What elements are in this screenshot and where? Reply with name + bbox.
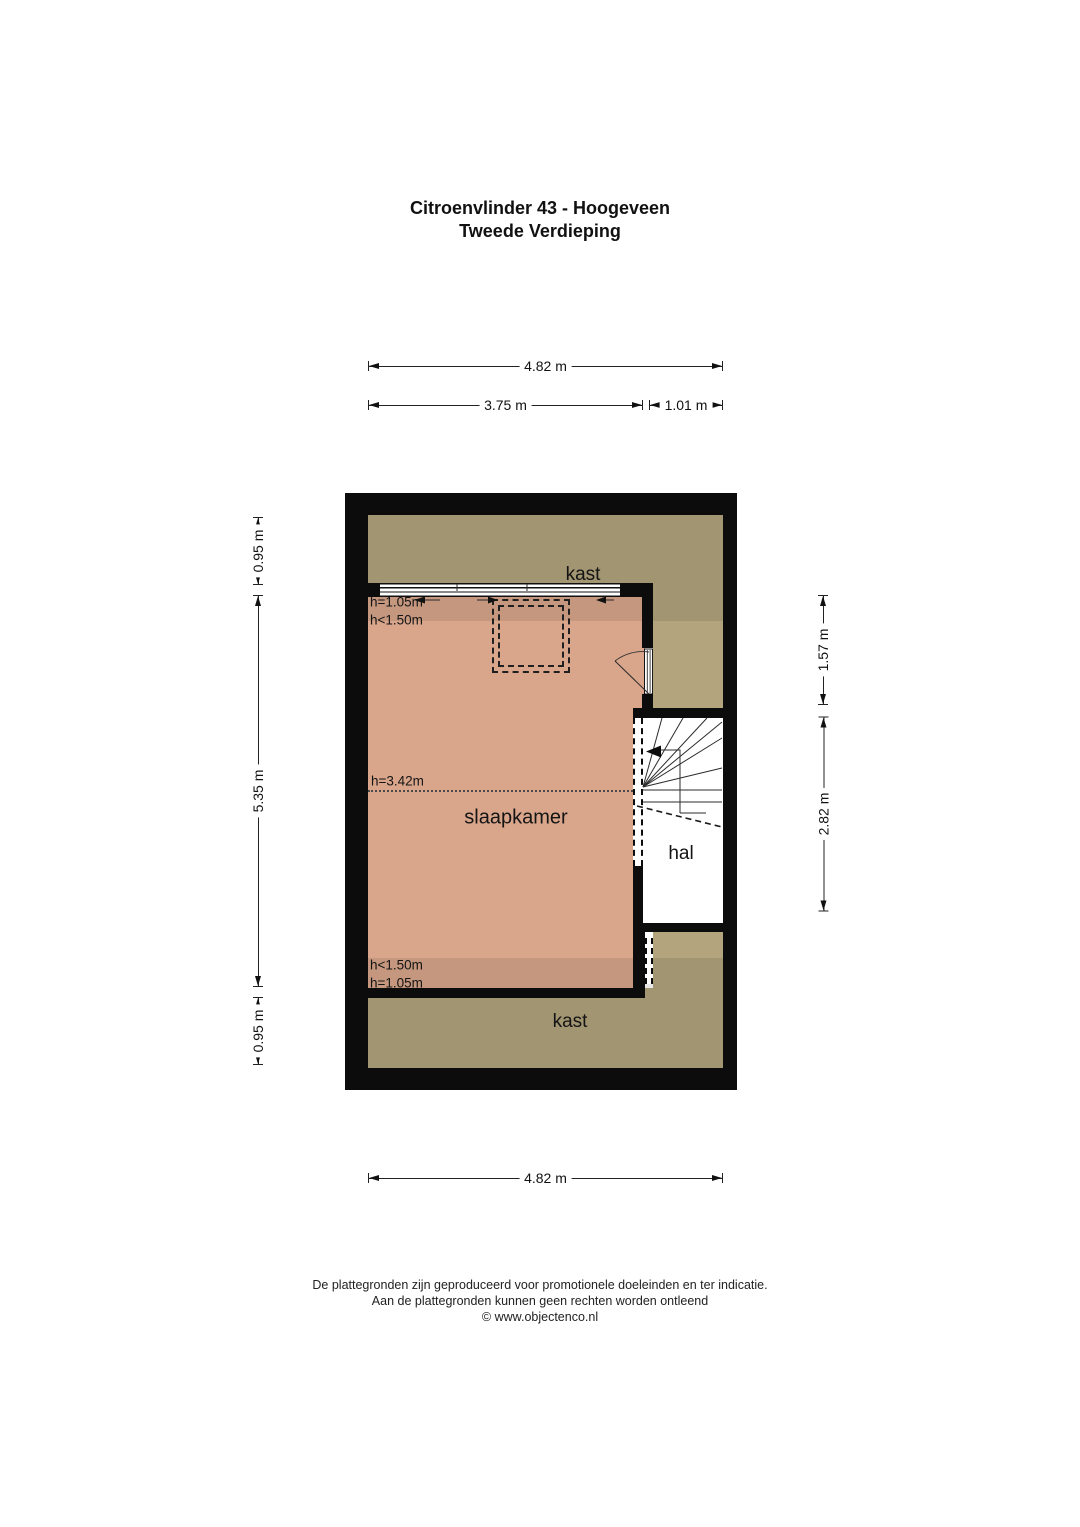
dim-arrow [369,1175,379,1181]
dim-label: 0.95 m [250,1005,266,1058]
title-floor: Tweede Verdieping [0,220,1080,243]
dim-tick [818,704,828,705]
dim-left-bottom: 0.95 m [251,997,265,1065]
dim-arrow [820,901,826,911]
disclaimer: De plattegronden zijn geproduceerd voor … [0,1277,1080,1325]
dim-arrow [369,402,379,408]
dim-arrow [650,402,660,408]
page-title: Citroenvlinder 43 - Hoogeveen Tweede Ver… [0,197,1080,243]
dim-label: 5.35 m [250,765,266,818]
plan-linework [345,493,737,1090]
leader-arrows [414,584,614,604]
staircase [637,718,722,827]
room-label-closet-top: kast [566,564,601,586]
floorplan-page: Citroenvlinder 43 - Hoogeveen Tweede Ver… [0,0,1080,1527]
dim-right-bottom: 2.82 m [817,717,831,912]
dim-arrow [712,1175,722,1181]
height-label-bottom-low: h<1.50m [370,958,423,973]
dim-arrow [712,402,722,408]
dim-top-left: 3.75 m [368,398,643,412]
dim-tick [722,361,723,371]
dim-tick [642,400,643,410]
dim-tick [722,1173,723,1183]
dim-label: 2.82 m [816,788,832,841]
dim-label: 4.82 m [519,358,572,374]
dim-arrow [820,694,826,704]
dim-tick [253,584,263,585]
dim-label: 1.57 m [815,624,831,677]
dim-arrow [255,596,261,606]
dim-top-right: 1.01 m [649,398,723,412]
disclaimer-line1: De plattegronden zijn geproduceerd voor … [0,1277,1080,1293]
height-label-bottom-knee: h=1.05m [370,976,423,991]
dim-bottom-total: 4.82 m [368,1171,723,1185]
dim-label: 4.82 m [519,1170,572,1186]
disclaimer-line2: Aan de plattegronden kunnen geen rechten… [0,1293,1080,1309]
dim-arrow [632,402,642,408]
room-label-bedroom: slaapkamer [464,807,567,830]
dim-left-middle: 5.35 m [251,595,265,987]
dim-arrow [369,363,379,369]
dim-arrow [712,363,722,369]
height-label-top-knee: h=1.05m [370,595,423,610]
height-label-ridge: h=3.42m [371,774,424,789]
door-swing [615,649,653,694]
dim-arrow [820,718,826,728]
dim-right-top: 1.57 m [816,595,830,705]
dim-tick [253,1064,263,1065]
dim-tick [819,911,829,912]
dim-tick [253,986,263,987]
dim-top-total: 4.82 m [368,359,723,373]
dim-label: 0.95 m [250,525,266,578]
dim-arrow [820,596,826,606]
dim-label: 3.75 m [479,397,532,413]
title-address: Citroenvlinder 43 - Hoogeveen [0,197,1080,220]
height-label-top-low: h<1.50m [370,613,423,628]
dim-tick [722,400,723,410]
room-label-hall: hal [668,843,693,865]
dim-label: 1.01 m [660,397,713,413]
dim-left-top: 0.95 m [251,517,265,585]
dim-arrow [255,976,261,986]
room-label-closet-bottom: kast [553,1011,588,1033]
disclaimer-copyright: © www.objectenco.nl [0,1309,1080,1325]
